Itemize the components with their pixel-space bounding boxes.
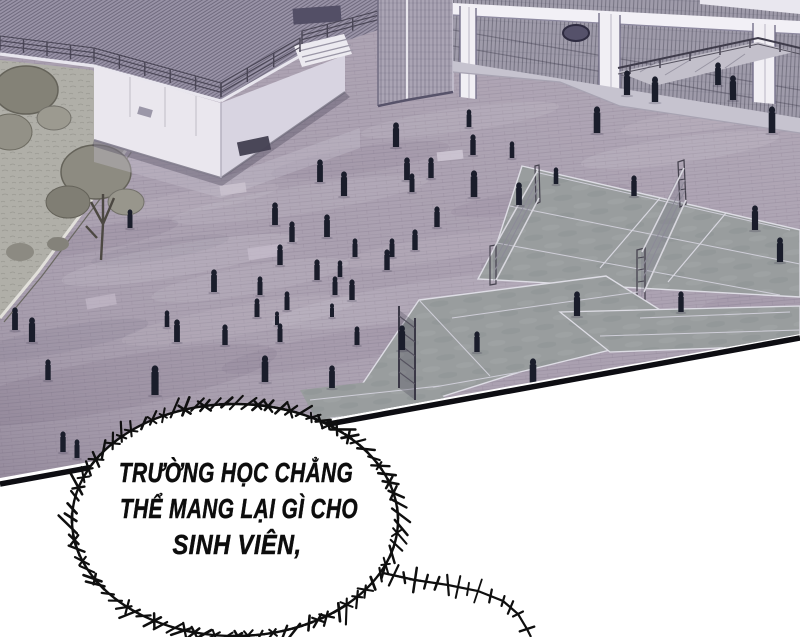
svg-text:SINH VIÊN,: SINH VIÊN, xyxy=(172,528,301,560)
svg-text:TRƯỜNG HỌC CHẲNG: TRƯỜNG HỌC CHẲNG xyxy=(119,457,353,489)
svg-text:THỂ MANG LẠI GÌ CHO: THỂ MANG LẠI GÌ CHO xyxy=(120,493,358,525)
